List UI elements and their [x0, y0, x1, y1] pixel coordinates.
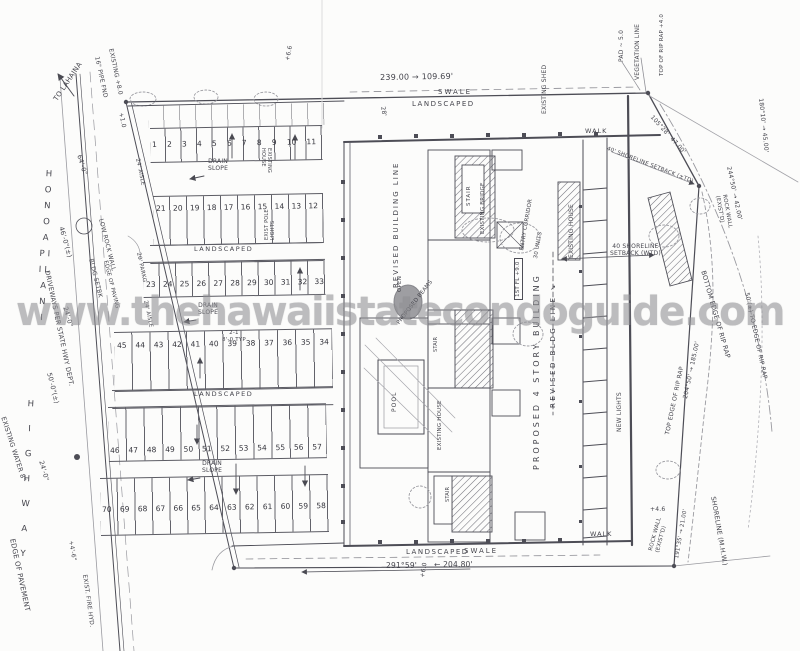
stall-number: 16: [241, 202, 251, 211]
stall-number: 41: [191, 340, 201, 349]
stall-number: 64: [209, 503, 219, 512]
label-landscaped-top: LANDSCAPED: [412, 100, 475, 108]
stall-number: 7: [242, 138, 247, 147]
label-bottom-dim: ← 204.80': [434, 560, 473, 569]
stall-number: 8: [257, 138, 262, 147]
stall-number: 34: [319, 337, 329, 346]
stall-number: 19: [190, 203, 200, 212]
stall-number: 33: [314, 277, 324, 286]
stall-number: 28: [230, 278, 240, 287]
stall-number: 42: [172, 340, 182, 349]
scanned-site-plan: 1234567891011 21201918171615141312 23242…: [0, 0, 800, 651]
label-stair-2: STAIR: [433, 337, 439, 352]
stall-number: 25: [180, 279, 190, 288]
stall-number: 6: [227, 139, 232, 148]
stall-number: 59: [298, 501, 308, 510]
stall-number: 65: [191, 503, 201, 512]
stall-number: 24: [163, 280, 173, 289]
stall-number: 43: [154, 340, 164, 349]
stall-number: 4: [197, 139, 202, 148]
label-revised-building-line: REVISED BUILDING LINE: [392, 162, 400, 288]
stall-number: 26: [197, 279, 207, 288]
stall-number: 36: [282, 338, 292, 347]
stall-number: 2: [167, 140, 172, 149]
stall-number: 50: [184, 445, 194, 454]
stall-number: 60: [281, 502, 291, 511]
label-vegetation-line: VEGETATION LINE: [634, 24, 641, 80]
label-stair-1: STAIR: [466, 185, 473, 206]
label-swale-top: SWALE: [438, 88, 472, 96]
label-walk-top: WALK: [585, 128, 607, 136]
label-existing-bridge: EXISTING BRIDGE: [480, 182, 487, 234]
label-walk-bottom: WALK: [590, 531, 612, 539]
stall-number: 11: [306, 137, 316, 146]
stall-number: 61: [263, 502, 273, 511]
stall-number: 54: [257, 443, 267, 452]
stall-number: 62: [245, 502, 255, 511]
label-stair-3: STAIR: [445, 487, 451, 502]
stall-number: 57: [312, 442, 322, 451]
label-swale-bottom: SWALE: [464, 547, 498, 555]
stall-number: 53: [239, 444, 249, 453]
label-rip-rap-top: TOP OF RIP RAP +4.0: [659, 14, 666, 76]
label-pole-lights: EXIST POLE LIGHTS: [264, 209, 276, 240]
stall-number: 68: [138, 504, 148, 513]
stall-number: 1: [152, 140, 157, 149]
watermark: www.thehawaiistatecondoguide.com: [2, 289, 798, 335]
stall-number: 49: [165, 445, 175, 454]
stall-number: 55: [275, 443, 285, 452]
stall-number: 66: [173, 504, 183, 513]
stall-number: 70: [102, 505, 112, 514]
stall-number: 27: [213, 279, 223, 288]
label-landscaped-bottom: LANDSCAPED: [406, 548, 469, 556]
label-bottom-bearing: 291°59': [386, 561, 417, 570]
label-existing-shed: EXISTING SHED: [541, 65, 548, 114]
stall-number: 63: [227, 503, 237, 512]
stall-number: 23: [146, 280, 156, 289]
label-top-dim: 239.00 → 109.69': [380, 72, 453, 83]
stall-number: 69: [120, 505, 130, 514]
stall-number: 29: [247, 278, 257, 287]
stall-number: 47: [128, 446, 138, 455]
stall-number: 18: [207, 203, 217, 212]
stall-number: 56: [294, 443, 304, 452]
label-pool: POOL: [391, 392, 398, 412]
stall-number: 3: [182, 139, 187, 148]
stall-number: 31: [281, 277, 291, 286]
stall-number: 37: [264, 338, 274, 347]
stall-number: 52: [220, 444, 230, 453]
label-setback-note: 40 SHORELINE SETBACK (WTD): [610, 243, 661, 257]
stall-number: 5: [212, 139, 217, 148]
label-drain-slope-3: DRAIN SLOPE: [202, 460, 222, 474]
label-landscaped-1: LANDSCAPED: [194, 246, 253, 254]
stall-number: 35: [301, 338, 311, 347]
stall-number: 12: [308, 201, 318, 210]
label-new-lights: NEW LIGHTS: [616, 392, 623, 432]
stall-number: 38: [246, 339, 256, 348]
stall-number: 48: [147, 445, 157, 454]
label-existing-house-parking: EXISTING HOUSE: [260, 148, 272, 173]
stall-number: 21: [156, 204, 166, 213]
stall-number: 30: [264, 278, 274, 287]
stall-number: 44: [135, 341, 145, 350]
stall-number: 32: [298, 277, 308, 286]
stall-number: 40: [209, 339, 219, 348]
label-existing-house-right: EXISTING HOUSE: [568, 204, 575, 258]
label-drain-slope-1: DRAIN SLOPE: [208, 158, 228, 172]
stall-number: 20: [173, 204, 183, 213]
stall-number: 67: [156, 504, 166, 513]
label-pad: PAD ~ 5.0: [618, 30, 625, 62]
label-existing-house-center: EXISTING HOUSE: [437, 400, 444, 450]
stall-number: 58: [316, 501, 326, 510]
label-dim-28: 28': [379, 106, 388, 117]
stall-number: 13: [291, 201, 301, 210]
stall-number: 17: [224, 203, 234, 212]
stall-number: 9: [272, 138, 277, 147]
stall-number: 46: [110, 446, 120, 455]
stall-number: 10: [287, 137, 297, 146]
stall-band-top: [148, 103, 324, 128]
label-spot-46-se: +4.6: [650, 506, 665, 513]
stall-number: 45: [117, 341, 127, 350]
label-landscaped-2: LANDSCAPED: [194, 391, 253, 399]
stall-number: 51: [202, 444, 212, 453]
